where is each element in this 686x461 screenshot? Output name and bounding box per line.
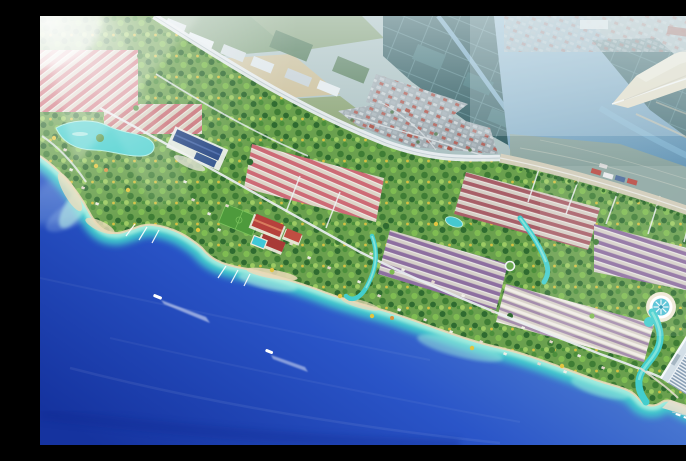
rendering-canvas [40, 16, 686, 445]
aerial-rendering [40, 16, 686, 445]
township-distance-haze [540, 166, 686, 336]
roundabout [506, 262, 515, 271]
distance-haze-right [470, 16, 686, 136]
